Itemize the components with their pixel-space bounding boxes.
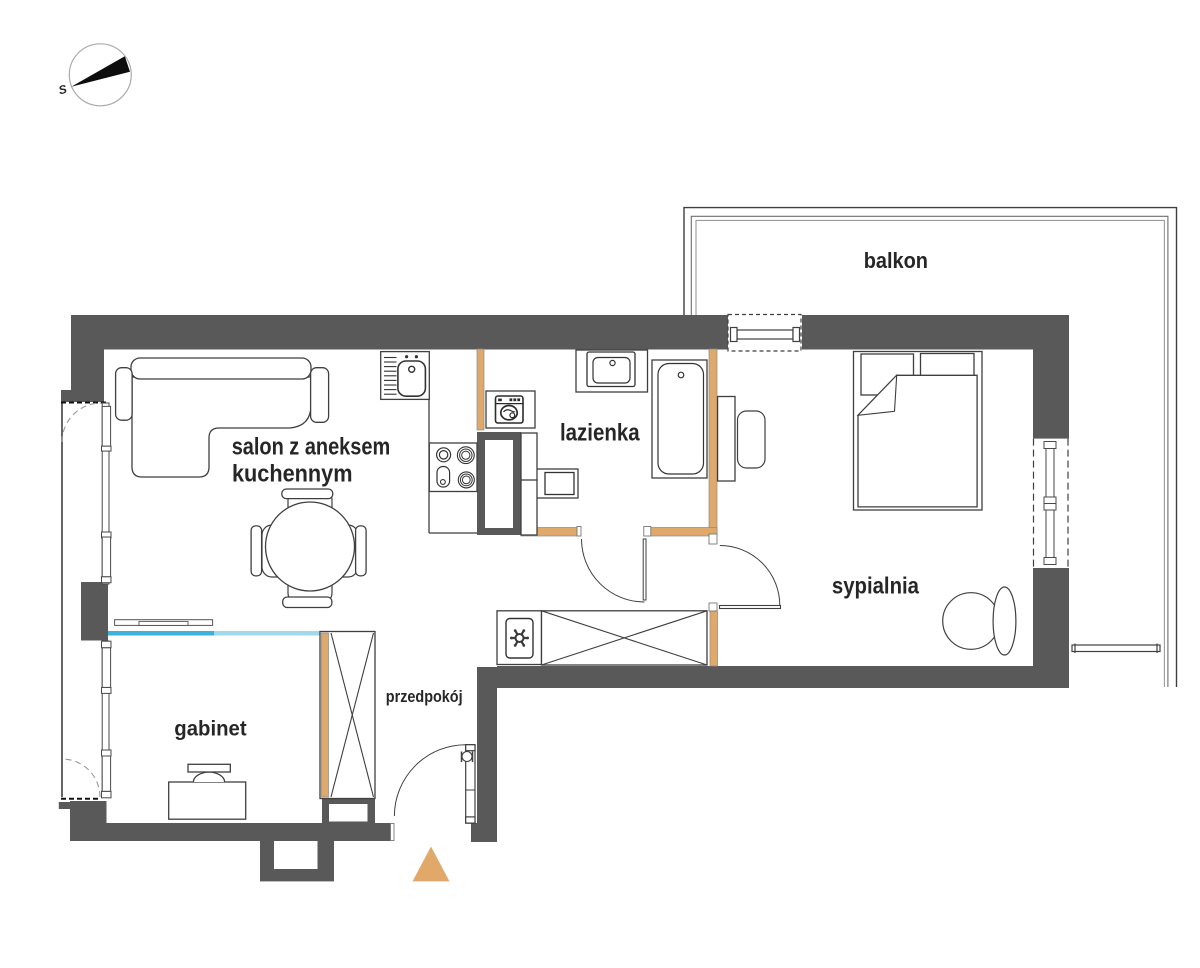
svg-text:gabinet: gabinet	[174, 718, 246, 741]
svg-text:lazienka: lazienka	[560, 420, 640, 447]
svg-text:sypialnia: sypialnia	[832, 573, 919, 599]
svg-text:balkon: balkon	[864, 248, 928, 273]
svg-text:kuchennym: kuchennym	[232, 460, 353, 487]
svg-text:przedpokój: przedpokój	[386, 688, 463, 706]
svg-text:salon z aneksem: salon z aneksem	[232, 433, 391, 460]
